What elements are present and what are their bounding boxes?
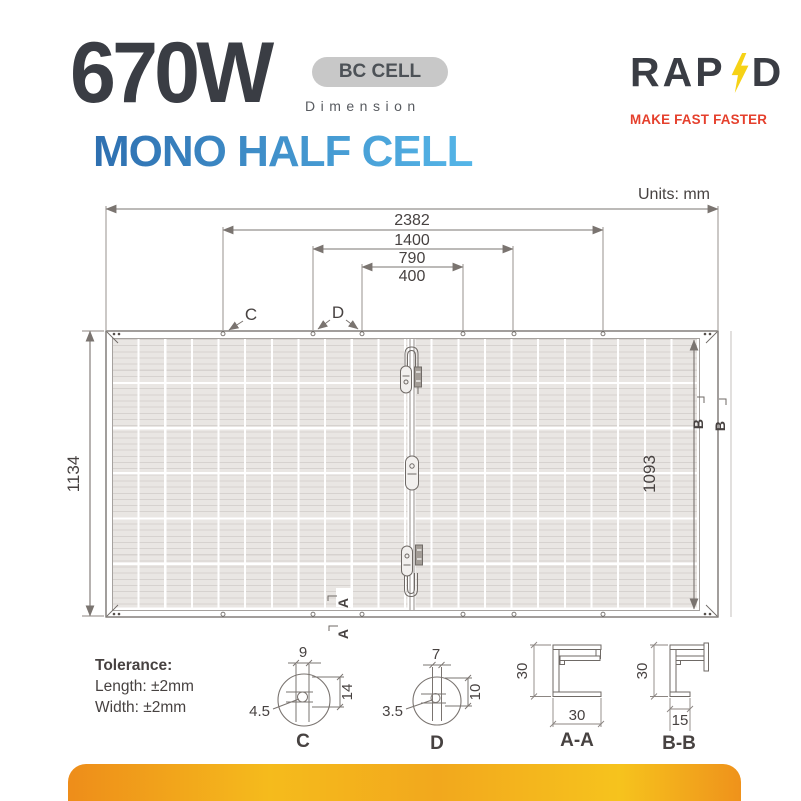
detail-c-label: C	[296, 731, 310, 752]
tolerance-note: Tolerance: Length: ±2mm Width: ±2mm	[95, 655, 194, 718]
detail-c-dim-hole: 4.5	[249, 703, 270, 720]
tolerance-length: Length: ±2mm	[95, 676, 194, 697]
section-b-outer-label: B	[712, 421, 728, 431]
dim-mount-mid: 790	[399, 250, 426, 267]
section-bb-label: B-B	[662, 733, 696, 754]
callout-d-label: D	[332, 303, 344, 322]
callout-c-label: C	[245, 305, 257, 324]
detail-d: 7 10 3.5 D	[382, 646, 484, 754]
dim-mount-inner: 400	[399, 268, 426, 285]
section-b-inner-label: B	[690, 419, 706, 429]
dim-mount-outer: 1400	[394, 232, 430, 249]
section-a-inner-label: A	[335, 598, 351, 608]
accent-bar	[68, 764, 741, 801]
dim-inner-width: 1093	[640, 455, 659, 493]
section-bb: 30 15 B-B	[634, 642, 709, 754]
tolerance-width: Width: ±2mm	[95, 697, 194, 718]
dim-overall-length: 2382	[394, 212, 430, 229]
junction-box-middle	[406, 456, 419, 490]
tolerance-title: Tolerance:	[95, 655, 194, 676]
detail-d-dim-hole: 3.5	[382, 703, 403, 720]
section-bb-dim-width: 15	[672, 712, 689, 729]
section-aa-dim-height: 30	[514, 663, 531, 680]
section-aa-dim-width: 30	[569, 707, 586, 724]
section-bb-dim-height: 30	[634, 663, 651, 680]
dim-overall-width: 1134	[64, 456, 83, 493]
section-aa: 30 30 A-A	[514, 642, 604, 751]
detail-d-label: D	[430, 733, 444, 754]
hole-callouts: C D	[229, 303, 358, 330]
section-aa-label: A-A	[560, 730, 594, 751]
section-a-marks: A A	[328, 588, 353, 639]
detail-d-dim-top: 7	[432, 646, 440, 663]
detail-d-dim-side: 10	[467, 684, 484, 701]
detail-c-dim-side: 14	[339, 684, 356, 701]
section-a-outer-label: A	[335, 629, 351, 639]
detail-c-dim-top: 9	[299, 644, 307, 661]
section-b-marks: B B	[690, 331, 731, 617]
detail-c: 9 14 4.5 C	[249, 644, 356, 752]
